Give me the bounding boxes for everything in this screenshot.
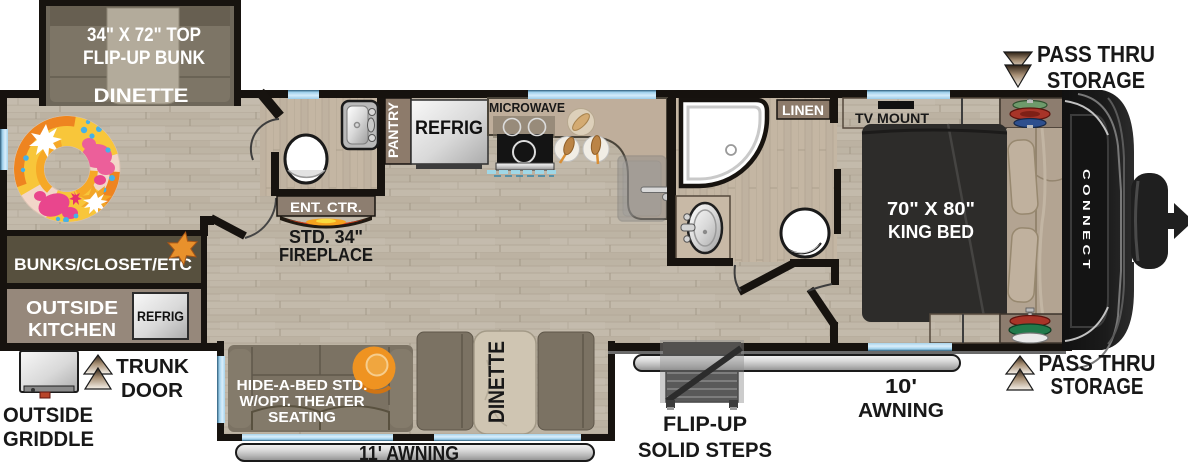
svg-text:70" X 80": 70" X 80" <box>887 199 975 219</box>
svg-text:LINEN: LINEN <box>782 102 824 118</box>
svg-text:KITCHEN: KITCHEN <box>28 319 116 340</box>
svg-text:OUTSIDE: OUTSIDE <box>3 404 93 427</box>
svg-text:SOLID STEPS: SOLID STEPS <box>638 439 772 462</box>
svg-text:REFRIG: REFRIG <box>137 309 184 324</box>
svg-text:CONNECT: CONNECT <box>1080 169 1091 273</box>
svg-text:OUTSIDE: OUTSIDE <box>26 297 118 318</box>
svg-text:PANTRY: PANTRY <box>385 101 401 158</box>
svg-text:HIDE-A-BED STD.: HIDE-A-BED STD. <box>237 377 368 394</box>
svg-text:MICROWAVE: MICROWAVE <box>489 100 565 115</box>
svg-text:FLIP-UP BUNK: FLIP-UP BUNK <box>83 47 205 69</box>
svg-text:KING BED: KING BED <box>888 222 974 242</box>
svg-text:ENT. CTR.: ENT. CTR. <box>290 199 362 215</box>
svg-text:DINETTE: DINETTE <box>94 85 189 107</box>
svg-text:FIREPLACE: FIREPLACE <box>279 245 373 265</box>
svg-text:AWNING: AWNING <box>858 400 944 422</box>
svg-text:10': 10' <box>885 376 917 398</box>
svg-text:34" X 72" TOP: 34" X 72" TOP <box>87 24 201 46</box>
svg-text:STORAGE: STORAGE <box>1051 373 1144 399</box>
svg-text:DINETTE: DINETTE <box>484 341 509 423</box>
svg-text:FLIP-UP: FLIP-UP <box>663 413 747 436</box>
svg-text:11' AWNING: 11' AWNING <box>359 443 459 463</box>
svg-text:STORAGE: STORAGE <box>1047 67 1145 93</box>
svg-text:TRUNK: TRUNK <box>116 356 190 378</box>
svg-text:REFRIG: REFRIG <box>415 118 483 139</box>
svg-text:BUNKS/CLOSET/ETC: BUNKS/CLOSET/ETC <box>14 255 192 274</box>
svg-text:DOOR: DOOR <box>121 380 184 402</box>
svg-text:STD. 34": STD. 34" <box>289 227 363 247</box>
svg-text:GRIDDLE: GRIDDLE <box>3 428 94 451</box>
svg-text:TV MOUNT: TV MOUNT <box>855 110 929 126</box>
svg-text:SEATING: SEATING <box>268 409 336 426</box>
svg-text:PASS THRU: PASS THRU <box>1037 41 1155 67</box>
svg-text:W/OPT. THEATER: W/OPT. THEATER <box>240 393 365 410</box>
